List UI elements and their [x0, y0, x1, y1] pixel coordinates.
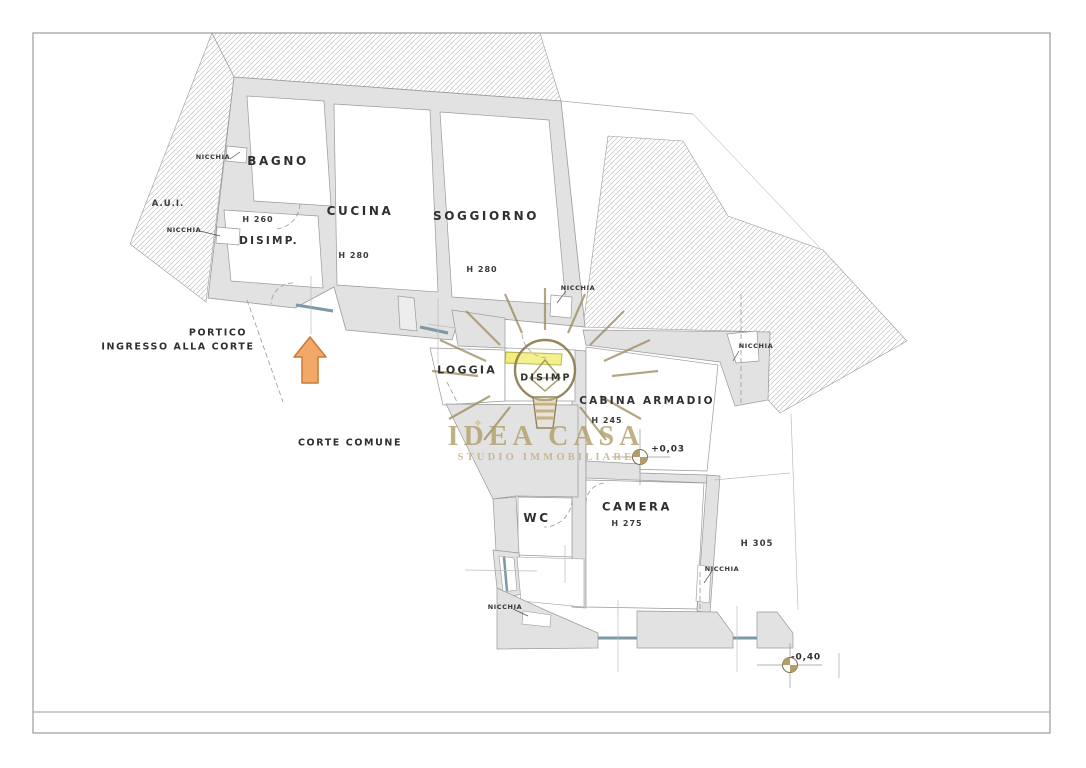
- boundary-line: [561, 101, 693, 114]
- niche-label-3: NICCHIA: [561, 285, 596, 292]
- height-label-h280-cucina: H 280: [338, 252, 369, 260]
- niche-label-6: NICCHIA: [488, 604, 523, 611]
- room-label-loggia: LOGGIA: [437, 365, 497, 376]
- niche-label-1: NICCHIA: [196, 154, 231, 161]
- niche-label-5: NICCHIA: [705, 566, 740, 573]
- height-label-h260: H 260: [242, 216, 273, 224]
- height-label-h275: H 275: [611, 520, 642, 528]
- niche-3: [550, 295, 572, 318]
- room-label-soggiorno: SOGGIORNO: [433, 210, 539, 222]
- room-label-camera: CAMERA: [602, 501, 672, 513]
- watermark-subtitle: STUDIO IMMOBILIARE: [458, 453, 635, 464]
- room-label-cabina-armadio: CABINA ARMADIO: [579, 396, 714, 407]
- area-label-aui: A.U.I.: [152, 200, 185, 209]
- entrance-arrow-icon: [294, 337, 326, 383]
- room-bagno: [247, 96, 331, 206]
- elevation-marker-icon-minus040: [757, 643, 839, 688]
- height-label-h280-soggiorno: H 280: [466, 266, 497, 274]
- elevation-label-minus040: -0,40: [791, 654, 821, 663]
- height-label-h305: H 305: [741, 540, 774, 549]
- area-label-corte-comune: CORTE COMUNE: [298, 438, 402, 448]
- niche-label-2: NICCHIA: [167, 227, 202, 234]
- room-label-disimpegno-lower: DISIMP: [520, 373, 571, 383]
- floor-plan-page: NICCHIA BAGNO A.U.I. NICCHIA H 260 DISIM…: [0, 0, 1086, 768]
- room-label-wc: WC: [523, 512, 550, 524]
- room-label-cucina: CUCINA: [327, 205, 394, 217]
- niche-label-4: NICCHIA: [739, 343, 774, 350]
- area-label-ingresso: INGRESSO ALLA CORTE: [101, 342, 254, 352]
- floor-plan-drawing: [0, 0, 1086, 768]
- room-label-disimpegno-upper: DISIMP.: [239, 236, 299, 247]
- room-loggia: [430, 348, 505, 405]
- area-label-portico: PORTICO: [189, 328, 247, 338]
- room-label-bagno: BAGNO: [247, 155, 309, 167]
- room-cucina: [334, 104, 438, 292]
- elevation-label-plus003: +0,03: [651, 446, 685, 455]
- watermark-title: IDEA CASA: [448, 423, 645, 451]
